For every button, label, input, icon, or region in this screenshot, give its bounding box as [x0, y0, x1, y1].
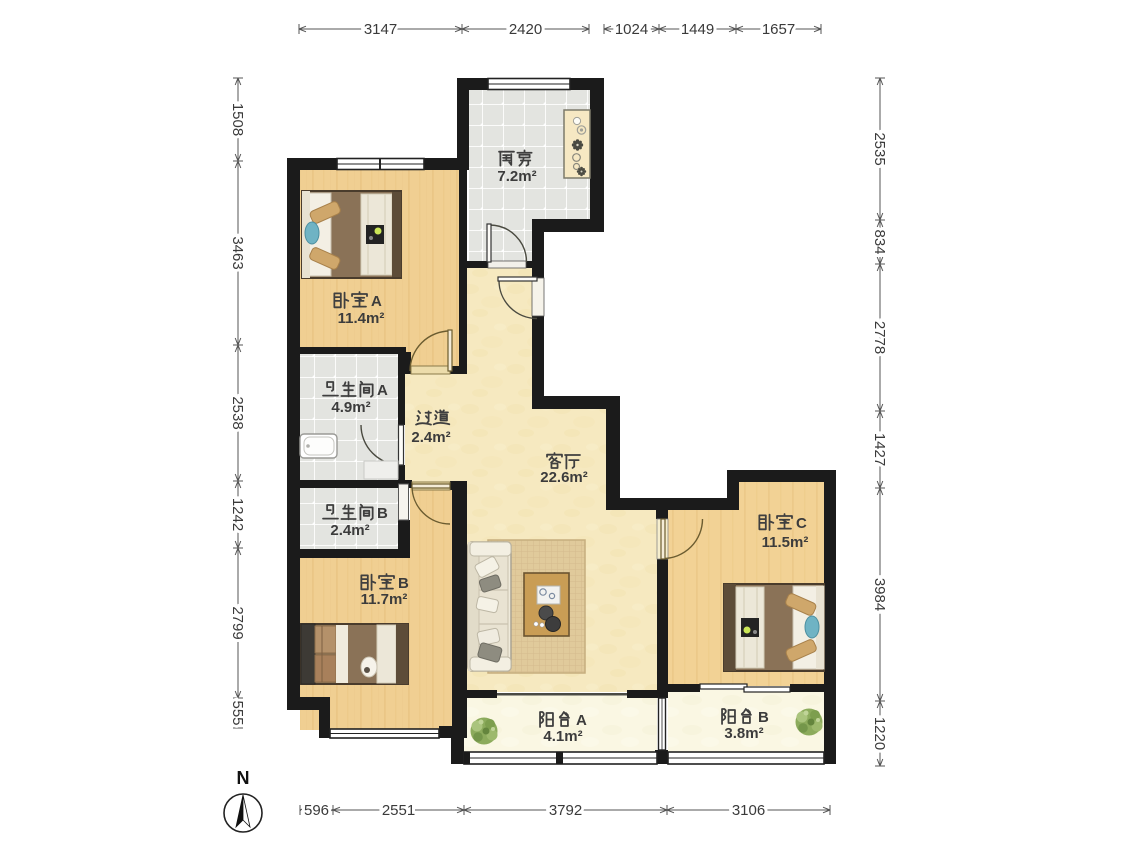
svg-text:N: N — [237, 768, 250, 788]
svg-text:A: A — [371, 293, 382, 310]
svg-text:2420: 2420 — [509, 21, 542, 38]
svg-text:3106: 3106 — [732, 802, 765, 819]
svg-text:C: C — [796, 515, 807, 532]
svg-text:1024: 1024 — [615, 21, 648, 38]
svg-text:4.1m²: 4.1m² — [543, 728, 582, 745]
svg-text:2778: 2778 — [871, 321, 888, 354]
svg-text:11.7m²: 11.7m² — [361, 591, 408, 608]
svg-text:3147: 3147 — [364, 21, 397, 38]
svg-text:1220: 1220 — [871, 717, 888, 750]
svg-text:2.4m²: 2.4m² — [411, 429, 450, 446]
svg-text:1449: 1449 — [681, 21, 714, 38]
svg-text:834: 834 — [871, 229, 888, 254]
svg-text:22.6m²: 22.6m² — [540, 469, 588, 486]
svg-text:2551: 2551 — [382, 802, 415, 819]
svg-text:596: 596 — [304, 802, 329, 819]
svg-text:B: B — [398, 575, 409, 592]
svg-text:4.9m²: 4.9m² — [331, 399, 370, 416]
svg-text:2799: 2799 — [229, 606, 246, 639]
svg-text:B: B — [758, 709, 769, 726]
svg-text:2535: 2535 — [871, 132, 888, 165]
svg-text:3984: 3984 — [871, 578, 888, 611]
svg-text:2538: 2538 — [229, 396, 246, 429]
svg-text:1427: 1427 — [871, 433, 888, 466]
svg-text:1242: 1242 — [229, 498, 246, 531]
svg-text:11.4m²: 11.4m² — [338, 310, 385, 327]
svg-text:A: A — [377, 382, 388, 399]
svg-text:2.4m²: 2.4m² — [330, 522, 369, 539]
svg-text:3792: 3792 — [549, 802, 582, 819]
svg-text:1508: 1508 — [229, 103, 246, 136]
svg-text:3.8m²: 3.8m² — [724, 725, 763, 742]
svg-text:B: B — [377, 505, 388, 522]
svg-text:11.5m²: 11.5m² — [762, 534, 809, 551]
svg-text:3463: 3463 — [229, 236, 246, 269]
svg-text:555: 555 — [229, 700, 246, 725]
svg-text:A: A — [576, 712, 587, 729]
svg-text:1657: 1657 — [762, 21, 795, 38]
svg-text:7.2m²: 7.2m² — [497, 168, 536, 185]
